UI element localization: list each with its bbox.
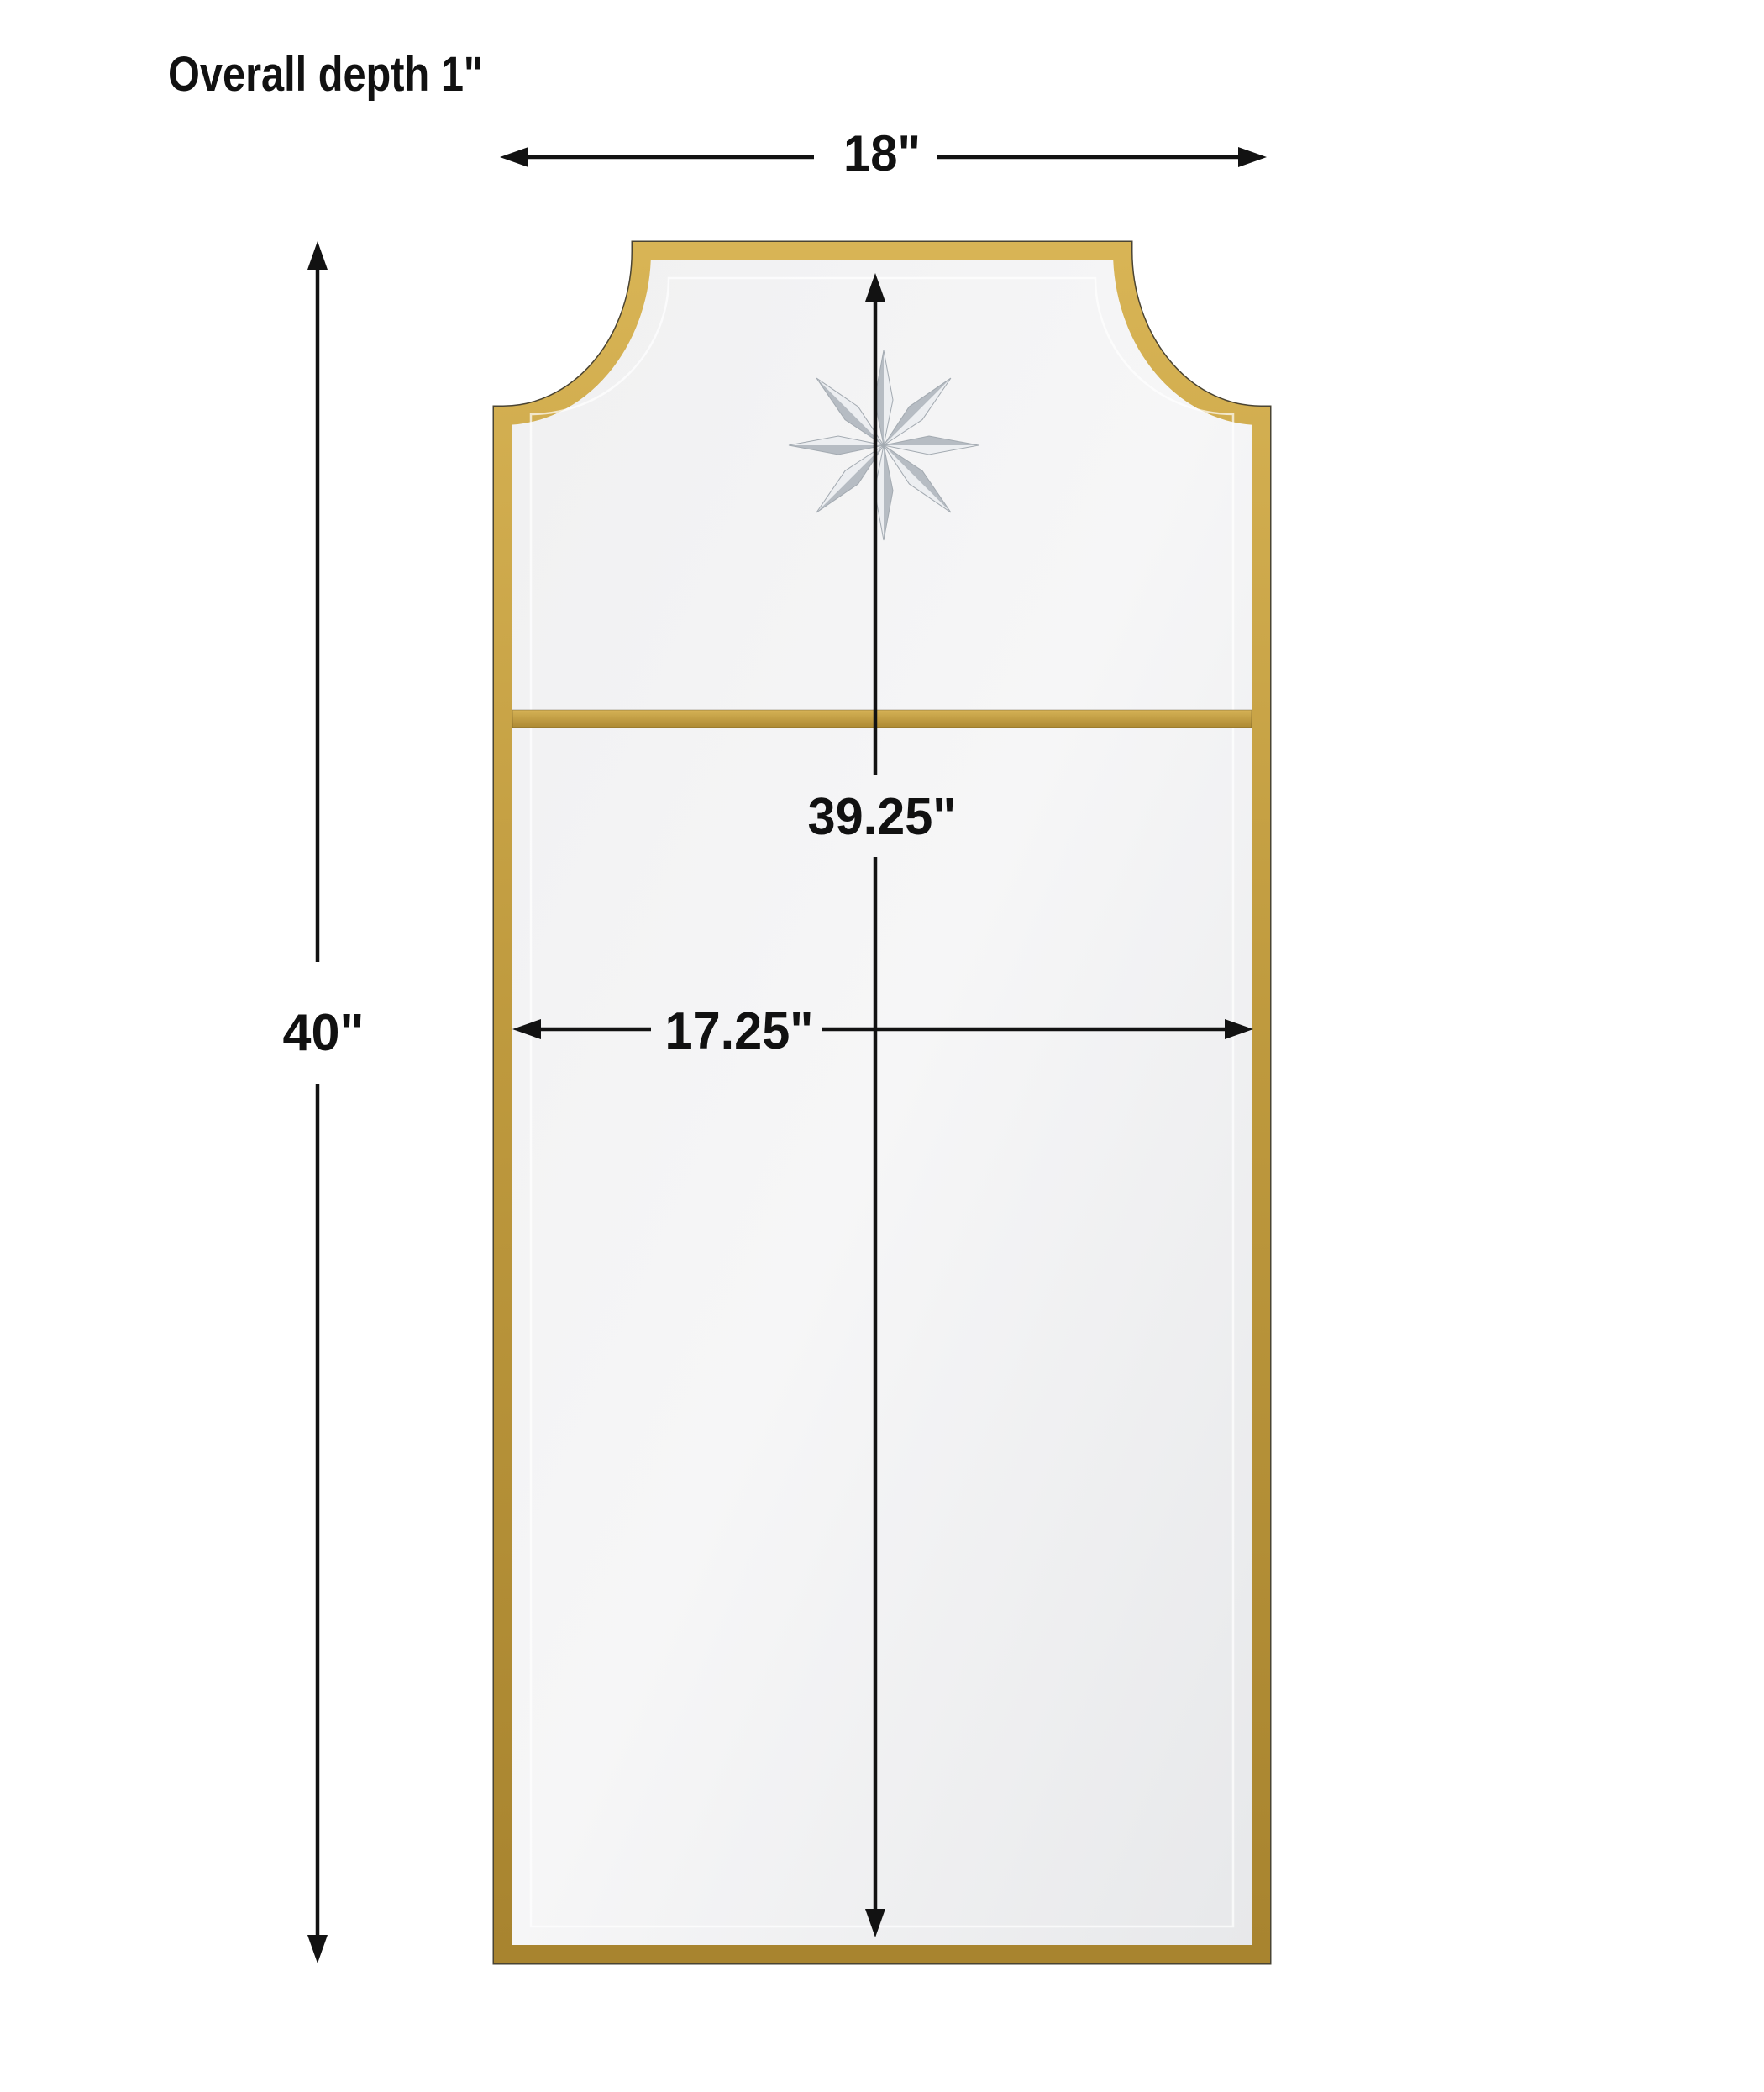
label-inner-width: 17.25" bbox=[665, 1002, 814, 1060]
label-overall-height: 40" bbox=[283, 1004, 365, 1062]
mirror-dimension-diagram: 18" 40" 39.25" 17.25" Overall depth 1" bbox=[0, 0, 1764, 2092]
label-overall-width: 18" bbox=[843, 125, 921, 181]
mirror-illustration bbox=[503, 251, 1261, 1954]
etched-star-icon bbox=[789, 350, 979, 540]
diagram-title: Overall depth 1" bbox=[168, 47, 483, 102]
mirror-divider-bar bbox=[512, 710, 1252, 728]
label-inner-height: 39.25" bbox=[808, 788, 957, 846]
